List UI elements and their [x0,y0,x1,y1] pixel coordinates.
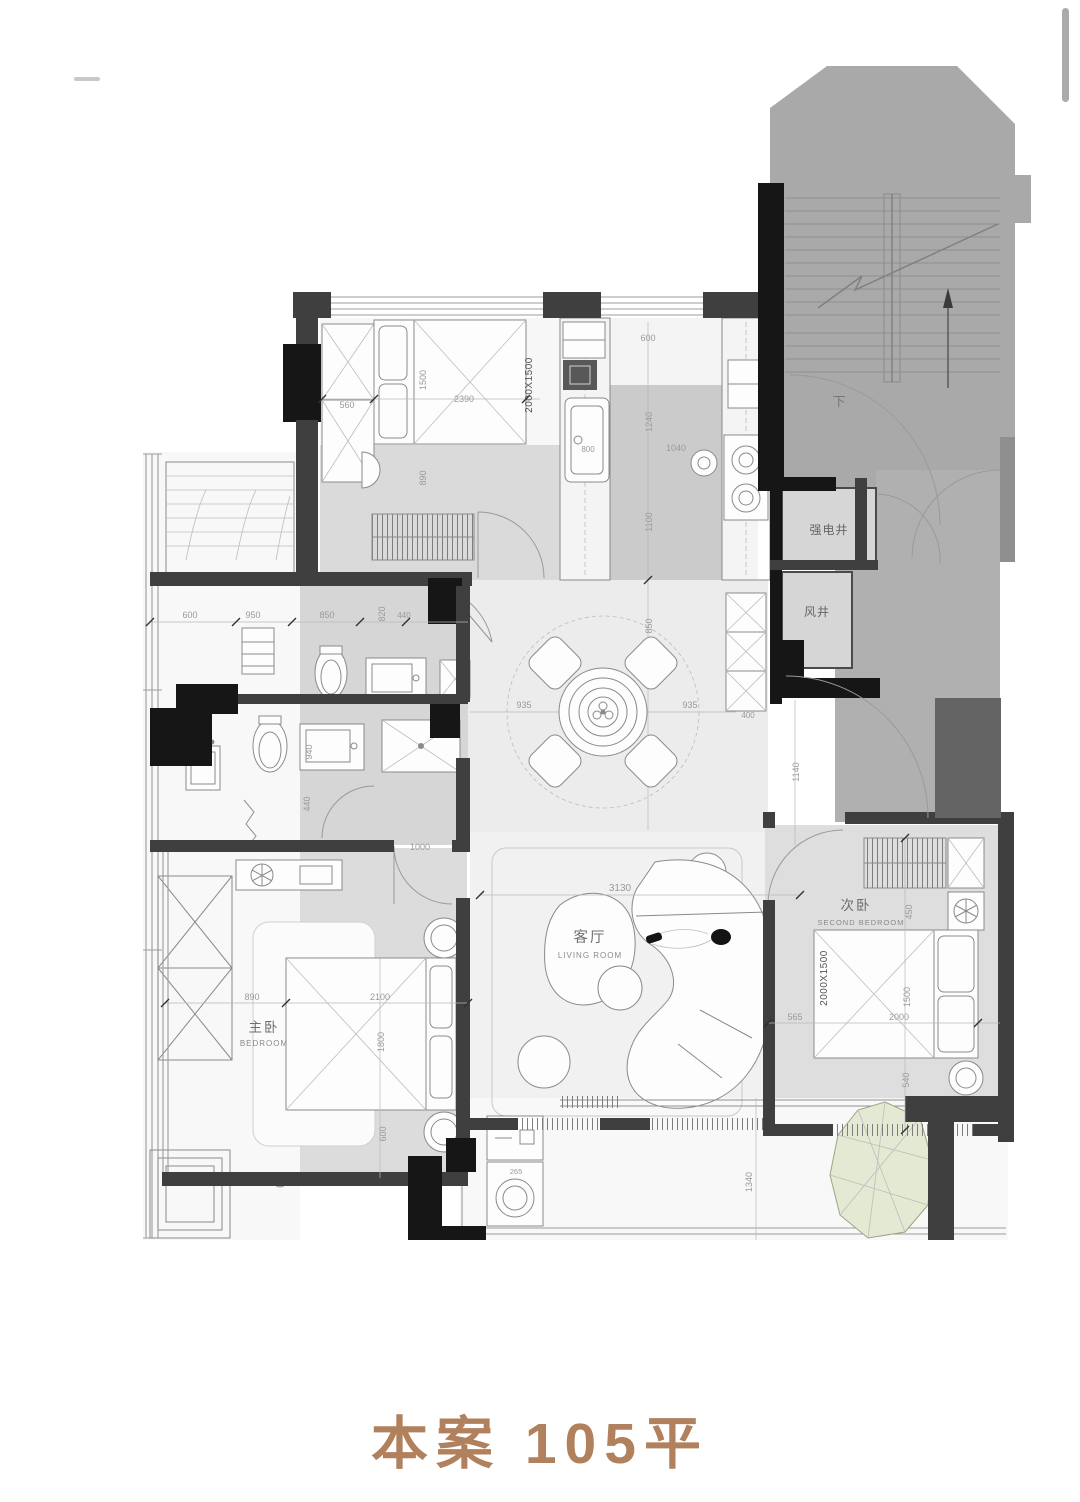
dim: 440 [397,611,411,620]
floor-plan-svg: 下 强电井 风井 [0,0,1080,1502]
dim: 1040 [666,443,686,453]
dim: 440 [302,796,312,811]
second-bedroom-label-en: SECOND BEDROOM [818,918,905,927]
dim: 1140 [791,762,801,781]
dim: 540 [901,1072,911,1087]
dim: 1500 [418,370,428,390]
dim: 950 [245,610,260,620]
dim: 850 [644,618,654,633]
dim: 890 [418,470,428,485]
dim: 600 [378,1126,388,1141]
dim: 800 [581,445,595,454]
dim: 2390 [454,394,474,404]
living-room-label-zh: 客厅 [574,929,607,946]
elec-shaft-label: 强电井 [809,523,848,537]
plan-caption: 本案 105平 [0,1398,1080,1480]
person-hair [711,929,731,945]
bed1-size: 2000X1500 [524,357,535,413]
dim: 940 [304,744,314,759]
dim: 1100 [644,512,654,531]
dim: 820 [377,606,387,621]
living-room-label-en: LIVING ROOM [558,951,622,960]
dim: 850 [319,610,334,620]
kitchen-sink [565,398,609,482]
dim: 560 [339,400,354,410]
dim: 400 [741,711,755,720]
dim: 1000 [410,842,430,852]
dim: 600 [640,333,655,343]
dim: 600 [182,610,197,620]
dim: 1800 [376,1032,386,1052]
dim: 935 [682,700,697,710]
stairs-down-label: 下 [832,394,847,409]
dim: 1340 [744,1172,754,1192]
master-bedroom-label-en: BEDROOM [240,1039,288,1048]
dim: 1500 [902,987,912,1007]
dim: 450 [904,904,914,919]
dim: 565 [787,1012,802,1022]
washer-dim: 265 [510,1167,523,1176]
toilet-2 [253,720,287,772]
toilet-1 [315,648,347,698]
water-heater [242,628,274,674]
dim: 1240 [644,412,654,432]
air-shaft-label: 风井 [804,605,830,619]
dim: 935 [516,700,531,710]
dim: 2000 [889,1012,909,1022]
dim: 3130 [609,883,632,894]
dim: 2100 [370,992,390,1002]
second-bedroom-label-zh: 次卧 [841,898,872,913]
dim: 890 [244,992,259,1002]
bed2-size: 2000X1500 [819,950,830,1006]
screenshot-root: 下 强电井 风井 [0,0,1080,1502]
master-bedroom-label-zh: 主卧 [249,1020,280,1035]
